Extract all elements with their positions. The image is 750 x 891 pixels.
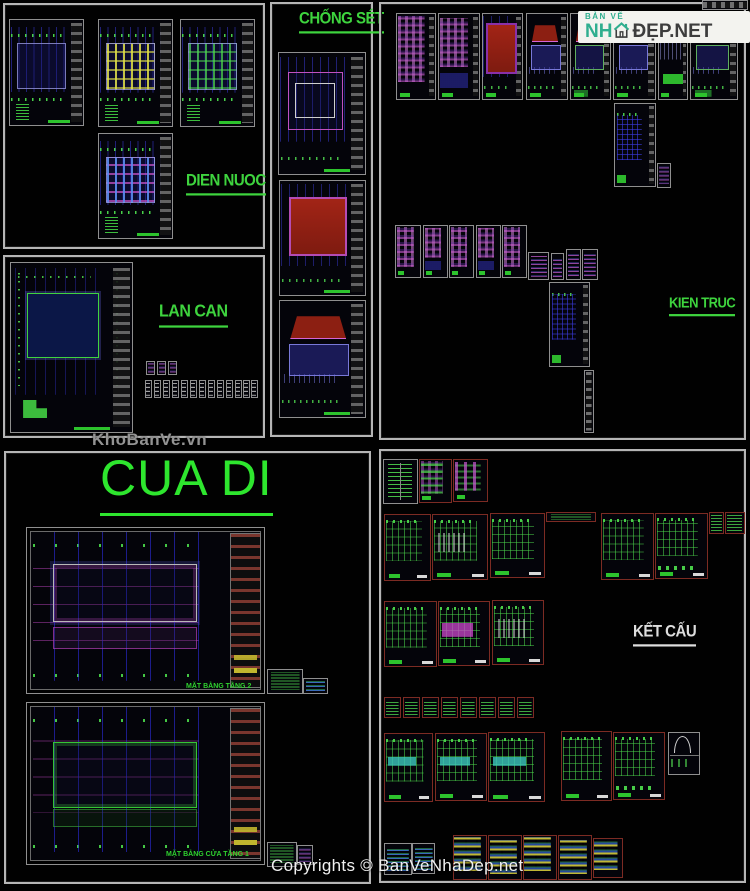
drawing-sheet	[180, 19, 255, 127]
drawing-sheet	[526, 13, 568, 100]
drawing-sheet	[279, 300, 366, 418]
drawing-sheet	[10, 262, 133, 433]
sheet-caption-bar	[660, 572, 673, 576]
sheet-titleblock	[516, 17, 521, 97]
drawing-sheet	[157, 361, 166, 375]
section-label-cua-di: CUA DI	[100, 453, 273, 516]
drawing-sheet	[384, 601, 437, 667]
sheet-caption-bar	[324, 169, 350, 172]
drawing-sheet	[593, 838, 623, 878]
logo-text-dark: ĐẸP.NET	[632, 22, 712, 41]
sheet-caption-bar	[422, 496, 430, 500]
drawing-sheet	[492, 600, 544, 665]
drawing-sheet	[235, 380, 242, 398]
sheet-caption-bar	[137, 233, 159, 236]
drawing-sheet	[582, 249, 598, 280]
sheet-titleblock	[71, 23, 81, 122]
drawing-sheet	[449, 225, 474, 278]
drawing-sheet	[9, 19, 84, 126]
sheet-caption-bar	[452, 271, 458, 275]
site-logo: BẢN VẼ NH ĐẸP.NET	[578, 11, 750, 43]
sheet-caption-bar	[495, 571, 509, 575]
sheet-caption-bar	[398, 271, 404, 275]
drawing-sheet	[528, 252, 549, 280]
sheet-caption-bar	[324, 290, 350, 293]
drawing-sheet	[432, 514, 488, 580]
drawing-sheet	[614, 103, 656, 187]
drawing-sheet	[613, 732, 665, 800]
section-label-chong-set: CHỐNG SÉT	[299, 10, 384, 34]
drawing-sheet	[168, 361, 177, 375]
drawing-sheet	[601, 513, 654, 580]
plan-caption: MẶT BẰNG CỬA TẦNG 1	[166, 851, 249, 858]
drawing-sheet	[460, 697, 477, 718]
sheet-caption-bar	[695, 93, 707, 97]
drawing-sheet	[145, 380, 152, 398]
drawing-sheet	[549, 282, 590, 367]
copyright-text: Copyrights © BanVeNhaDep.net	[271, 856, 523, 876]
drawing-sheet	[384, 514, 431, 581]
drawing-sheet	[278, 52, 366, 175]
sheet-caption-bar	[440, 794, 453, 798]
drawing-sheet	[482, 13, 523, 100]
drawing-sheet	[395, 225, 421, 278]
sheet-caption-bar	[324, 412, 350, 415]
sheet-caption-bar	[48, 120, 70, 123]
drawing-sheet	[217, 380, 224, 398]
sheet-caption-bar	[443, 659, 456, 663]
sheet-titleblock	[351, 304, 363, 413]
house-icon	[611, 20, 632, 41]
drawing-sheet	[438, 601, 490, 666]
drawing-sheet	[396, 13, 436, 100]
sheet-caption-bar	[617, 93, 628, 97]
drawing-sheet	[154, 380, 161, 398]
sheet-caption-bar	[486, 93, 496, 97]
sheet-titleblock	[649, 106, 655, 183]
drawing-sheet	[546, 512, 596, 522]
logo-wordmark: NH ĐẸP.NET	[585, 20, 750, 41]
sheet-caption-bar	[661, 93, 668, 97]
drawing-sheet	[383, 459, 418, 504]
drawing-sheet	[490, 513, 545, 578]
section-label-kien-truc: KIEN TRUC	[669, 295, 735, 316]
section-label-dien-nuoc: DIEN NUOC	[186, 172, 266, 196]
section-label-lan-can: LAN CAN	[159, 303, 228, 328]
drawing-sheet	[566, 249, 581, 280]
drawing-sheet	[251, 380, 258, 398]
sheet-caption-bar	[389, 660, 402, 664]
drawing-sheet	[551, 253, 564, 280]
sheet-caption-bar	[389, 795, 401, 799]
drawing-sheet	[498, 697, 515, 718]
sheet-titleblock	[351, 57, 363, 171]
sheet-caption-bar	[505, 271, 511, 275]
sheet-titleblock	[160, 23, 170, 123]
drawing-sheet	[403, 697, 420, 718]
drawing-sheet	[657, 163, 671, 188]
drawing-sheet	[267, 669, 303, 694]
drawing-sheet	[479, 697, 496, 718]
drawing-sheet	[384, 733, 433, 802]
sheet-titleblock	[113, 268, 130, 427]
watermark-text: KhoBanVe.vn	[92, 430, 207, 450]
sheet-caption-bar	[219, 121, 241, 124]
sheet-titleblock	[351, 184, 363, 291]
sheet-titleblock	[561, 17, 567, 97]
sheet-titleblock	[473, 17, 479, 97]
drawing-sheet	[561, 731, 612, 801]
sheet-titleblock	[429, 17, 434, 97]
sheet-caption-bar	[137, 121, 159, 124]
drawing-sheet	[303, 678, 328, 694]
drawing-sheet	[558, 835, 592, 880]
drawing-sheet	[476, 225, 501, 278]
drawing-sheet	[453, 459, 488, 502]
drawing-sheet	[419, 459, 452, 503]
sheet-caption-bar	[389, 574, 401, 578]
sheet-caption-bar	[566, 794, 579, 798]
sheet-caption-bar	[457, 495, 466, 499]
sheet-caption-bar	[437, 573, 451, 577]
drawing-sheet	[517, 697, 534, 718]
drawing-sheet	[709, 512, 724, 534]
sheet-caption-bar	[426, 271, 432, 275]
drawing-sheet	[208, 380, 215, 398]
sheet-caption-bar	[400, 93, 410, 97]
drawing-sheet	[163, 380, 170, 398]
sheet-titleblock	[230, 708, 262, 859]
sheet-caption-bar	[497, 658, 510, 662]
sheet-titleblock	[242, 23, 252, 123]
drawing-sheet	[243, 380, 250, 398]
sheet-titleblock	[160, 137, 170, 235]
drawing-sheet	[725, 512, 745, 534]
drawing-sheet	[26, 527, 265, 694]
sheet-titleblock	[583, 285, 588, 363]
drawing-sheet	[279, 180, 366, 296]
logo-text-green: NH	[585, 22, 612, 41]
drawing-sheet	[668, 732, 700, 775]
drawing-sheet	[98, 133, 173, 239]
drawing-sheet	[438, 13, 480, 100]
drawing-sheet	[172, 380, 179, 398]
drawing-sheet	[423, 225, 448, 278]
sheet-caption-bar	[479, 271, 485, 275]
drawing-sheet	[655, 513, 708, 579]
drawing-sheet	[199, 380, 206, 398]
section-label-ket-cau: KẾT CẤU	[633, 623, 696, 647]
drawing-sheet	[181, 380, 188, 398]
sheet-caption-bar	[606, 573, 619, 577]
sheet-caption-bar	[493, 795, 507, 799]
drawing-sheet	[702, 0, 748, 10]
sheet-caption-bar	[618, 793, 631, 797]
plan-caption: MẶT BẰNG TẦNG 2	[186, 683, 251, 690]
cad-drawing-preview: DIEN NUOCLAN CANCHỐNG SÉTKIEN TRUCCUA DI…	[0, 0, 750, 891]
drawing-sheet	[384, 697, 401, 718]
drawing-sheet	[26, 702, 265, 865]
drawing-sheet	[584, 370, 594, 433]
drawing-sheet	[441, 697, 458, 718]
drawing-sheet	[190, 380, 197, 398]
drawing-sheet	[226, 380, 233, 398]
drawing-sheet	[435, 733, 487, 801]
drawing-sheet	[422, 697, 439, 718]
drawing-sheet	[146, 361, 155, 375]
drawing-sheet	[502, 225, 527, 278]
drawing-sheet	[523, 835, 557, 880]
sheet-caption-bar	[442, 93, 452, 97]
sheet-caption-bar	[574, 93, 584, 97]
sheet-caption-bar	[530, 93, 540, 97]
sheet-titleblock	[230, 533, 262, 688]
drawing-sheet	[98, 19, 173, 127]
drawing-sheet	[488, 732, 545, 802]
